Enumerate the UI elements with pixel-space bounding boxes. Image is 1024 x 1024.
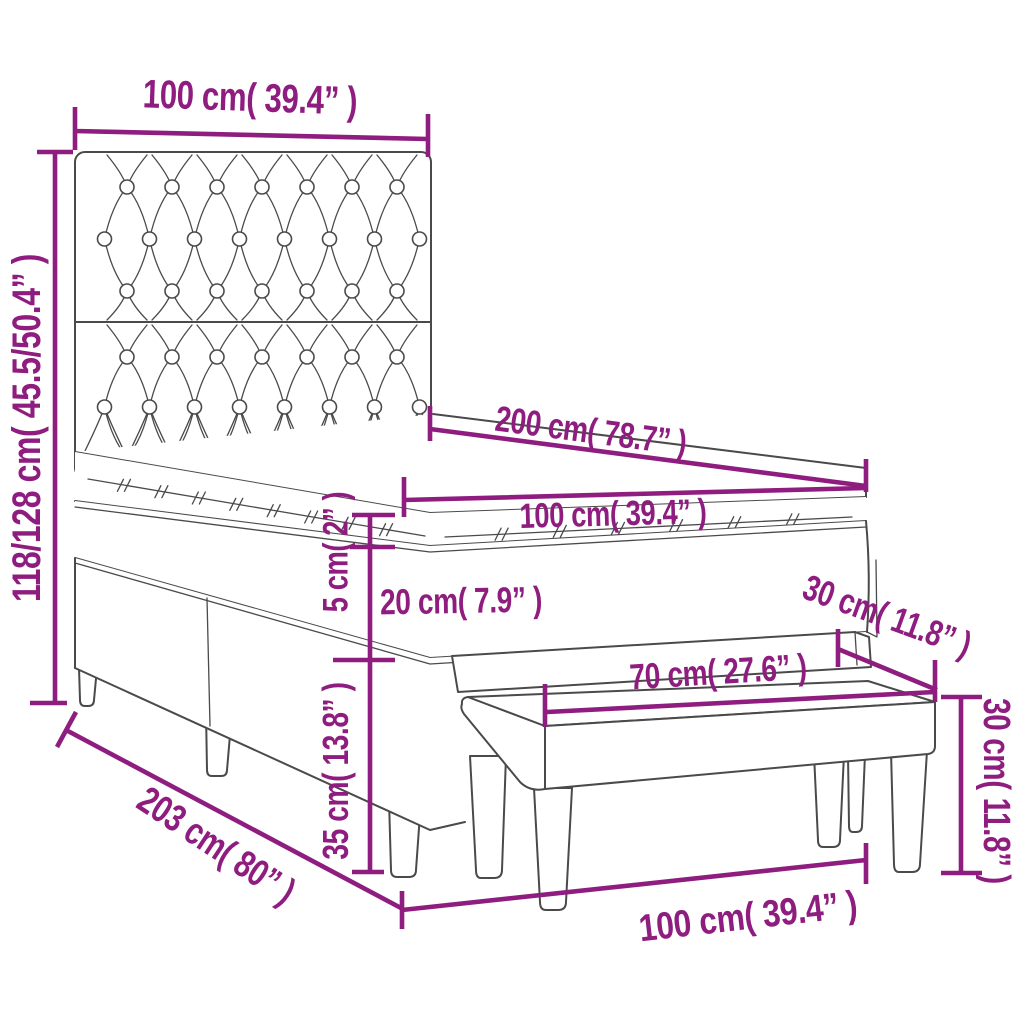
tuft-button — [390, 180, 404, 194]
tuft-button — [210, 180, 224, 194]
tuft-button — [368, 232, 382, 246]
tuft-button — [143, 400, 157, 414]
dim-label-mattress-thickness: 20 cm( 7.9” ) — [380, 582, 543, 621]
tuft-button — [323, 232, 337, 246]
tuft-button — [143, 232, 157, 246]
tuft-button — [345, 350, 359, 364]
tuft-button — [413, 232, 427, 246]
bed-dimension-diagram: 100 cm( 39.4” ) 118/128 cm( 45.5/50.4” )… — [0, 0, 1024, 1024]
tuft-button — [278, 232, 292, 246]
tuft-button — [188, 232, 202, 246]
tuft-button — [368, 400, 382, 414]
tuft-button — [98, 232, 112, 246]
tuft-button — [120, 350, 134, 364]
dim-label-bench-height: 30 cm( 11.8” ) — [977, 698, 1015, 884]
tuft-button — [255, 180, 269, 194]
tuft-button — [233, 400, 247, 414]
tuft-button — [413, 400, 427, 414]
tuft-button — [188, 400, 202, 414]
diagram-line-art — [0, 0, 1024, 1024]
tuft-button — [255, 284, 269, 298]
tuft-button — [210, 284, 224, 298]
dim-label-base-height: 35 cm( 13.8” ) — [318, 682, 354, 859]
tuft-button — [233, 232, 247, 246]
tuft-button — [345, 284, 359, 298]
tuft-button — [278, 400, 292, 414]
dim-label-mattress-width: 100 cm( 39.4” ) — [519, 494, 707, 534]
bench-leg — [891, 751, 927, 872]
tuft-button — [323, 400, 337, 414]
tuft-button — [390, 350, 404, 364]
tuft-button — [165, 180, 179, 194]
bench-leg — [814, 754, 844, 847]
tuft-button — [390, 284, 404, 298]
tuft-button — [300, 350, 314, 364]
tuft-button — [300, 284, 314, 298]
tuft-button — [165, 284, 179, 298]
bench-leg — [848, 754, 865, 832]
dim-label-total-height: 118/128 cm( 45.5/50.4” ) — [7, 254, 47, 602]
tuft-button — [255, 350, 269, 364]
tuft-button — [210, 350, 224, 364]
dim-label-headboard-width: 100 cm( 39.4” ) — [142, 74, 358, 121]
bench-leg — [470, 756, 506, 878]
tuft-button — [300, 180, 314, 194]
tuft-button — [98, 400, 112, 414]
tuft-button — [120, 180, 134, 194]
tuft-button — [345, 180, 359, 194]
dim-label-topper-thickness: 5 cm( 2” ) — [319, 492, 354, 613]
tuft-button — [165, 350, 179, 364]
tuft-button — [120, 284, 134, 298]
